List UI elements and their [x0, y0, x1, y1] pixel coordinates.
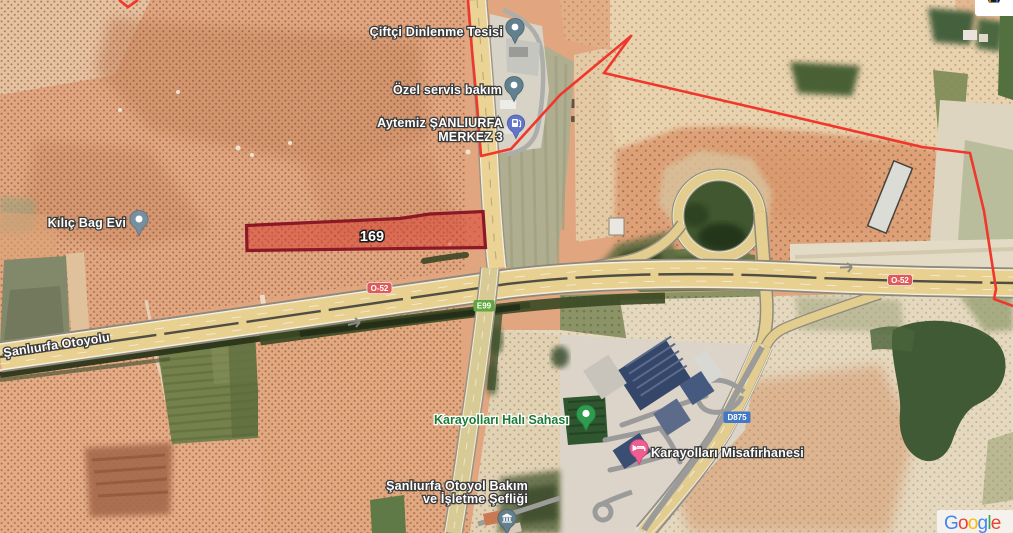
svg-text:MERKEZ 3: MERKEZ 3	[438, 130, 503, 144]
svg-text:E99: E99	[477, 302, 492, 311]
svg-text:Kılıç Bag Evi: Kılıç Bag Evi	[48, 216, 126, 230]
svg-text:Çiftçi Dinlenme Tesisi: Çiftçi Dinlenme Tesisi	[370, 25, 503, 39]
svg-text:D875: D875	[727, 413, 747, 422]
svg-text:Şanlıurfa Otoyol Bakım: Şanlıurfa Otoyol Bakım	[386, 479, 528, 493]
svg-text:Özel servis bakım: Özel servis bakım	[393, 82, 502, 97]
svg-text:O-52: O-52	[371, 284, 389, 293]
svg-text:169: 169	[360, 229, 384, 245]
svg-text:O-52: O-52	[891, 276, 909, 285]
svg-text:Karayolları Misafirhanesi: Karayolları Misafirhanesi	[651, 446, 804, 460]
svg-text:Google: Google	[944, 513, 1001, 533]
svg-text:Aytemiz ŞANLIURFA: Aytemiz ŞANLIURFA	[377, 116, 503, 130]
svg-text:Karayolları Halı Sahası: Karayolları Halı Sahası	[434, 413, 569, 427]
svg-text:ve İşletme Şefliği: ve İşletme Şefliği	[423, 491, 528, 506]
